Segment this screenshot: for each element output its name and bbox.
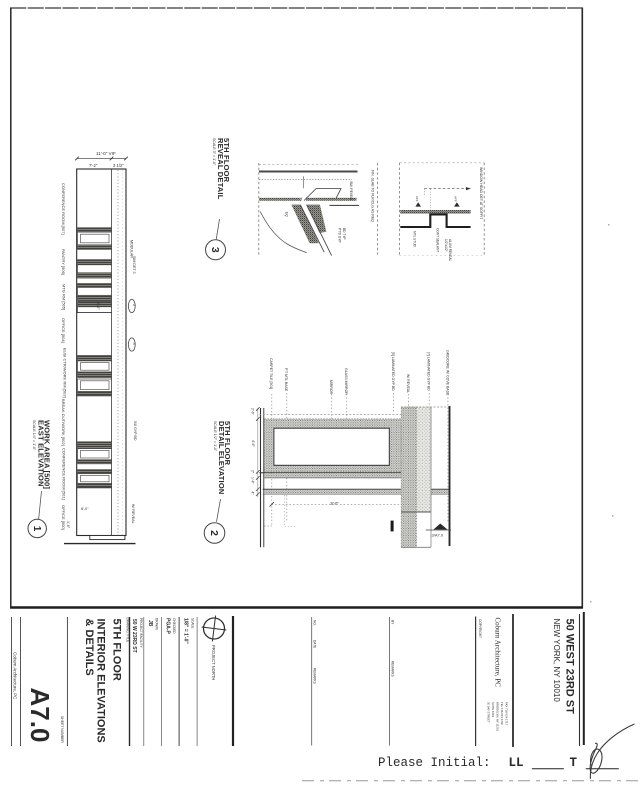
svg-text:8'-0": 8'-0" xyxy=(331,501,340,506)
svg-text:AFF: AFF xyxy=(454,196,458,202)
svg-text:AFF: AFF xyxy=(415,196,419,202)
svg-text:SHEET NUMBER: SHEET NUMBER xyxy=(60,716,64,743)
svg-text:CARPET TILE [501]: CARPET TILE [501] xyxy=(269,358,273,389)
svg-text:BD TYP: BD TYP xyxy=(342,228,346,239)
svg-text:PANTRY [506]: PANTRY [506] xyxy=(61,249,66,275)
svg-text:MTL STUD: MTL STUD xyxy=(413,231,417,248)
svg-text:3 1/2": 3 1/2" xyxy=(113,163,124,168)
svg-text:50 W 23RD ST: 50 W 23RD ST xyxy=(131,619,137,653)
svg-text:BREAK OUT/WORK [502]: BREAK OUT/WORK [502] xyxy=(61,399,66,446)
svg-text:INTERIOR ELEVATIONS: INTERIOR ELEVATIONS xyxy=(95,619,107,743)
svg-text:REMARKS: REMARKS xyxy=(390,661,394,677)
svg-text:W/ REVEAL: W/ REVEAL xyxy=(131,504,135,524)
svg-text:1: 1 xyxy=(31,526,42,532)
svg-text:T: T xyxy=(570,756,578,770)
svg-text:WINDOW HEAD DET AT SOFFIT: WINDOW HEAD DET AT SOFFIT xyxy=(479,167,483,220)
svg-text:DETAIL ELEVATION: DETAIL ELEVATION xyxy=(217,421,226,494)
svg-text:A7.0: A7.0 xyxy=(25,688,55,743)
svg-text:DATE: DATE xyxy=(313,640,317,648)
svg-text:REVEAL DETAIL: REVEAL DETAIL xyxy=(216,138,225,200)
svg-text:LL: LL xyxy=(509,756,524,770)
svg-text:SCALE 3" = 1'-0": SCALE 3" = 1'-0" xyxy=(212,138,216,166)
svg-text:FAX 718 624 1717: FAX 718 624 1717 xyxy=(505,702,509,726)
svg-text:& DETAILS: & DETAILS xyxy=(83,619,95,676)
svg-text:SCALE 1/4" = 1'-0": SCALE 1/4" = 1'-0" xyxy=(32,420,36,451)
svg-text:4'-6": 4'-6" xyxy=(251,440,255,448)
svg-text:MTG RM [505]: MTG RM [505] xyxy=(62,284,67,310)
svg-text:50 WEST 23RD ST: 50 WEST 23RD ST xyxy=(564,619,576,715)
svg-text:CONFERENCE ROOM [501]: CONFERENCE ROOM [501] xyxy=(62,448,67,500)
svg-text:GRIDCORE W/ COVE BASE: GRIDCORE W/ COVE BASE xyxy=(445,350,449,396)
svg-text:8'-0": 8'-0" xyxy=(81,507,89,511)
svg-text:MIRROR: MIRROR xyxy=(329,380,333,395)
svg-text:REMARKS: REMARKS xyxy=(313,668,317,684)
svg-text:TEL 718 624 1700: TEL 718 624 1700 xyxy=(500,702,504,725)
svg-text:DRAWN: DRAWN xyxy=(154,618,158,631)
svg-text:P'TD GYP: P'TD GYP xyxy=(338,228,342,243)
svg-text:CONT SEALANT: CONT SEALANT xyxy=(436,228,440,252)
svg-text:BLK REVEAL: BLK REVEAL xyxy=(349,182,353,202)
svg-text:11'-0" VIF: 11'-0" VIF xyxy=(96,151,116,156)
svg-text:P'T MTL BASE: P'T MTL BASE xyxy=(284,368,288,392)
svg-text:2'-6": 2'-6" xyxy=(251,408,255,416)
svg-text:BUSI CTR/WORK RM [503]: BUSI CTR/WORK RM [503] xyxy=(63,348,68,398)
svg-text:COPYRIGHT: COPYRIGHT xyxy=(478,619,482,638)
svg-text:ALUM REVEAL: ALUM REVEAL xyxy=(448,239,452,262)
svg-text:PGA-P: PGA-P xyxy=(164,618,170,635)
svg-text:3: 3 xyxy=(209,247,221,253)
svg-text:7'-2": 7'-2" xyxy=(89,163,98,168)
svg-text:3/A7.0: 3/A7.0 xyxy=(432,533,444,538)
svg-text:SUITE 1003: SUITE 1003 xyxy=(491,702,495,718)
svg-text:PROJECT NORTH: PROJECT NORTH xyxy=(211,645,216,680)
svg-text:GLASS MIRROR: GLASS MIRROR xyxy=(344,368,348,395)
svg-text:OFFICE [504]: OFFICE [504] xyxy=(61,318,66,343)
svg-text:NEW YORK, NY 10010: NEW YORK, NY 10010 xyxy=(552,619,561,703)
svg-text:CONFERENCE ROOM [507]: CONFERENCE ROOM [507] xyxy=(61,183,66,235)
svg-text:20 JAY STREET: 20 JAY STREET xyxy=(487,702,491,723)
svg-text:CHECKED: CHECKED xyxy=(172,618,176,634)
svg-text:OFFICE [500]: OFFICE [500] xyxy=(61,505,66,530)
svg-text:W/ REVEAL: W/ REVEAL xyxy=(406,374,410,393)
svg-text:5/8 GYP BD: 5/8 GYP BD xyxy=(133,421,137,441)
svg-text:SCALE 1/2" = 1'-0": SCALE 1/2" = 1'-0" xyxy=(213,421,217,452)
svg-text:1'-4": 1'-4" xyxy=(251,477,255,485)
svg-text:1/8" = 1'-0": 1/8" = 1'-0" xyxy=(182,618,188,644)
svg-text:FIN. SLAB TO FLR/CLG AS REQ: FIN. SLAB TO FLR/CLG AS REQ xyxy=(371,170,375,222)
svg-text:BROOKLYN, NY 11201: BROOKLYN, NY 11201 xyxy=(496,702,500,732)
svg-text:PROJECT/FACILITY: PROJECT/FACILITY xyxy=(139,618,143,648)
svg-text:EQ: EQ xyxy=(285,212,289,217)
svg-text:1/2"x1/2": 1/2"x1/2" xyxy=(444,239,448,252)
svg-text:Coburn Architecture, PC: Coburn Architecture, PC xyxy=(494,618,502,688)
svg-text:Coburn Architecture, PC: Coburn Architecture, PC xyxy=(12,652,17,699)
svg-text:NO.: NO. xyxy=(313,620,317,626)
svg-text:2: 2 xyxy=(208,530,220,536)
svg-text:5TH FLOOR: 5TH FLOOR xyxy=(111,619,123,681)
svg-text:EAST ELEVATION: EAST ELEVATION xyxy=(36,420,45,487)
svg-text:[7] LAMINATED GYP BD: [7] LAMINATED GYP BD xyxy=(427,352,431,391)
svg-text:[5] LAMINATED GYP BD: [5] LAMINATED GYP BD xyxy=(391,352,395,391)
svg-text:JB: JB xyxy=(147,620,153,627)
svg-text:Please Initial:: Please Initial: xyxy=(378,756,491,770)
svg-text:SIM DET 3: SIM DET 3 xyxy=(132,256,136,274)
svg-text:SCALE: SCALE xyxy=(190,618,194,628)
svg-text:8'-0": 8'-0" xyxy=(96,302,100,310)
